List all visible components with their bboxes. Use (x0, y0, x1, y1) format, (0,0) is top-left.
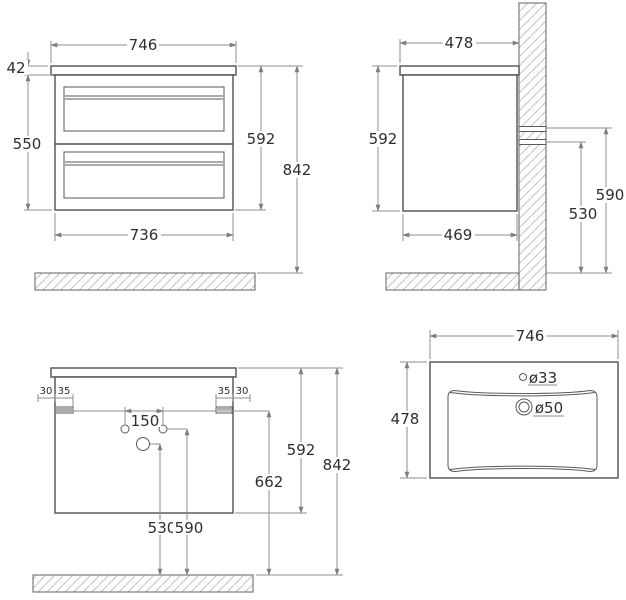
floor-hatch-back (33, 575, 253, 592)
dim-back-supply-height: 590 (175, 519, 204, 537)
dim-back-left-inner: 35 (58, 386, 71, 397)
countertop-side (400, 66, 519, 75)
cabinet-front (55, 75, 233, 210)
dim-drain-diameter: ø50 (535, 399, 563, 417)
dim-side-lower-mount-height: 530 (569, 205, 598, 223)
dim-side-cabinet-height: 592 (369, 130, 398, 148)
dim-top-depth: 478 (391, 410, 420, 428)
dim-front-total-height: 842 (283, 161, 312, 179)
technical-drawing-page: 746 42 550 592 842 736 (0, 0, 626, 600)
cabinet-side (403, 75, 517, 211)
dim-back-left-outer: 30 (40, 386, 53, 397)
dim-front-counter-thickness: 42 (6, 59, 25, 77)
dim-side-top-depth: 478 (445, 34, 474, 52)
dim-back-hole-spacing: 150 (131, 412, 160, 430)
front-elevation-view: 746 42 550 592 842 736 (5, 36, 314, 290)
dim-side-bottom-depth: 469 (444, 226, 473, 244)
dim-back-right-inner: 35 (218, 386, 231, 397)
countertop-front (51, 66, 236, 75)
dim-back-mount-to-floor: 662 (255, 473, 284, 491)
cabinet-back (55, 377, 233, 513)
dim-back-drain-height: 530 (148, 519, 177, 537)
dim-front-top-width: 746 (129, 36, 158, 54)
back-mounting-view: 30 35 35 30 150 592 662 842 530 590 (33, 368, 354, 592)
dim-front-body-height: 550 (13, 135, 42, 153)
countertop-back (51, 368, 236, 377)
floor-hatch (35, 273, 255, 290)
floor-hatch-side (386, 273, 519, 290)
dim-back-cabinet-height: 592 (287, 441, 316, 459)
dim-side-upper-mount-height: 590 (596, 186, 625, 204)
countertop-plan (430, 362, 618, 478)
vanity-technical-drawing: 746 42 550 592 842 736 (0, 0, 626, 600)
dim-front-cabinet-height: 592 (247, 130, 276, 148)
dim-front-bottom-width: 736 (130, 226, 159, 244)
side-section-view: 478 592 469 590 530 (366, 3, 626, 290)
dim-top-width: 746 (516, 327, 545, 345)
dim-back-right-outer: 30 (236, 386, 249, 397)
dim-faucet-hole-diameter: ø33 (529, 369, 557, 387)
wall-hatch (519, 3, 546, 290)
dim-back-total-height: 842 (323, 456, 352, 474)
basin-top-view: 746 478 ø33 ø50 (388, 327, 618, 478)
